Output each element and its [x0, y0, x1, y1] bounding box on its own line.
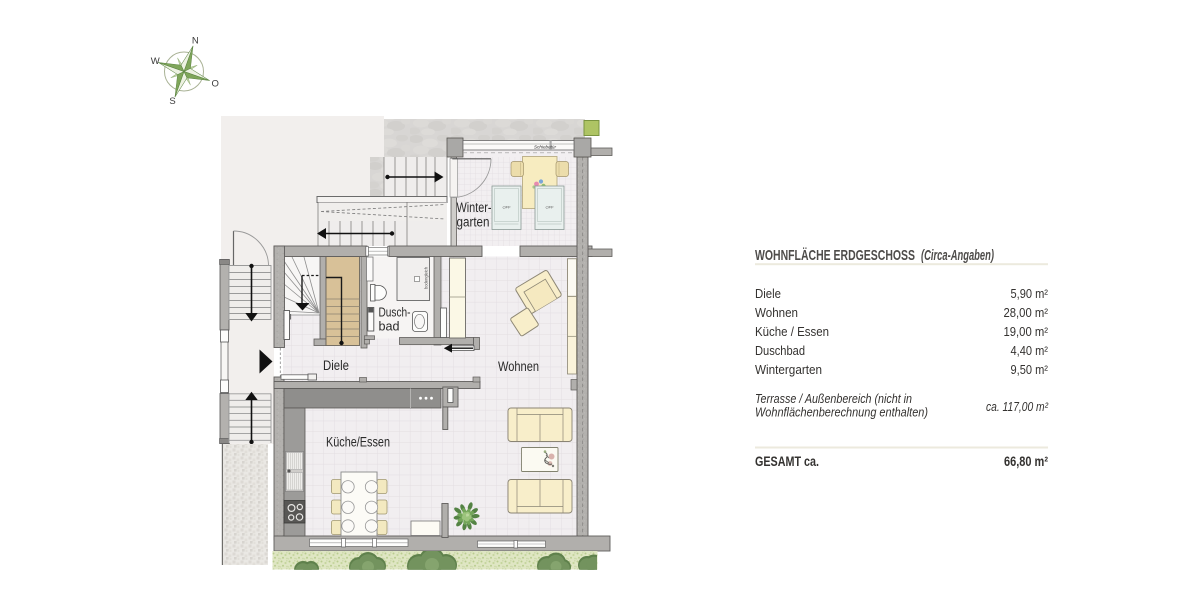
svg-text:66,80 m²: 66,80 m² [1004, 454, 1048, 469]
svg-text:Dusch-: Dusch- [379, 306, 411, 320]
svg-text:OFF: OFF [503, 205, 512, 210]
svg-text:GESAMT ca.: GESAMT ca. [755, 454, 819, 469]
svg-text:Küche / Essen: Küche / Essen [755, 324, 829, 339]
svg-text:OFF: OFF [546, 205, 555, 210]
svg-text:Winter-: Winter- [457, 200, 492, 215]
svg-text:Wohnen: Wohnen [498, 358, 539, 374]
svg-text:Wohnflächenberechnung enthalte: Wohnflächenberechnung enthalten) [755, 405, 928, 420]
svg-text:Küche/Essen: Küche/Essen [326, 435, 390, 450]
svg-text:Duschbad: Duschbad [755, 343, 805, 358]
svg-text:19,00 m²: 19,00 m² [1004, 324, 1049, 339]
svg-text:WOHNFLÄCHE ERDGESCHOSS: WOHNFLÄCHE ERDGESCHOSS [755, 247, 915, 264]
svg-text:S: S [169, 96, 175, 107]
svg-text:Diele: Diele [755, 286, 781, 301]
svg-text:Schiebetür: Schiebetür [534, 145, 556, 150]
svg-text:garten: garten [457, 215, 490, 230]
svg-text:bodengleich: bodengleich [424, 266, 429, 289]
svg-text:9,50 m²: 9,50 m² [1011, 362, 1049, 377]
svg-text:N: N [192, 36, 199, 47]
svg-text:O: O [212, 79, 219, 90]
svg-text:Wintergarten: Wintergarten [755, 362, 822, 377]
svg-text:W: W [151, 56, 160, 67]
svg-text:Diele: Diele [323, 358, 349, 373]
svg-text:(Circa-Angaben): (Circa-Angaben) [921, 247, 994, 264]
svg-text:Wohnen: Wohnen [755, 305, 798, 320]
svg-text:28,00 m²: 28,00 m² [1004, 305, 1049, 320]
svg-text:ca. 117,00 m²: ca. 117,00 m² [986, 399, 1048, 414]
svg-text:bad: bad [379, 320, 400, 334]
svg-text:4,40 m²: 4,40 m² [1011, 343, 1049, 358]
svg-text:5,90 m²: 5,90 m² [1011, 286, 1049, 301]
